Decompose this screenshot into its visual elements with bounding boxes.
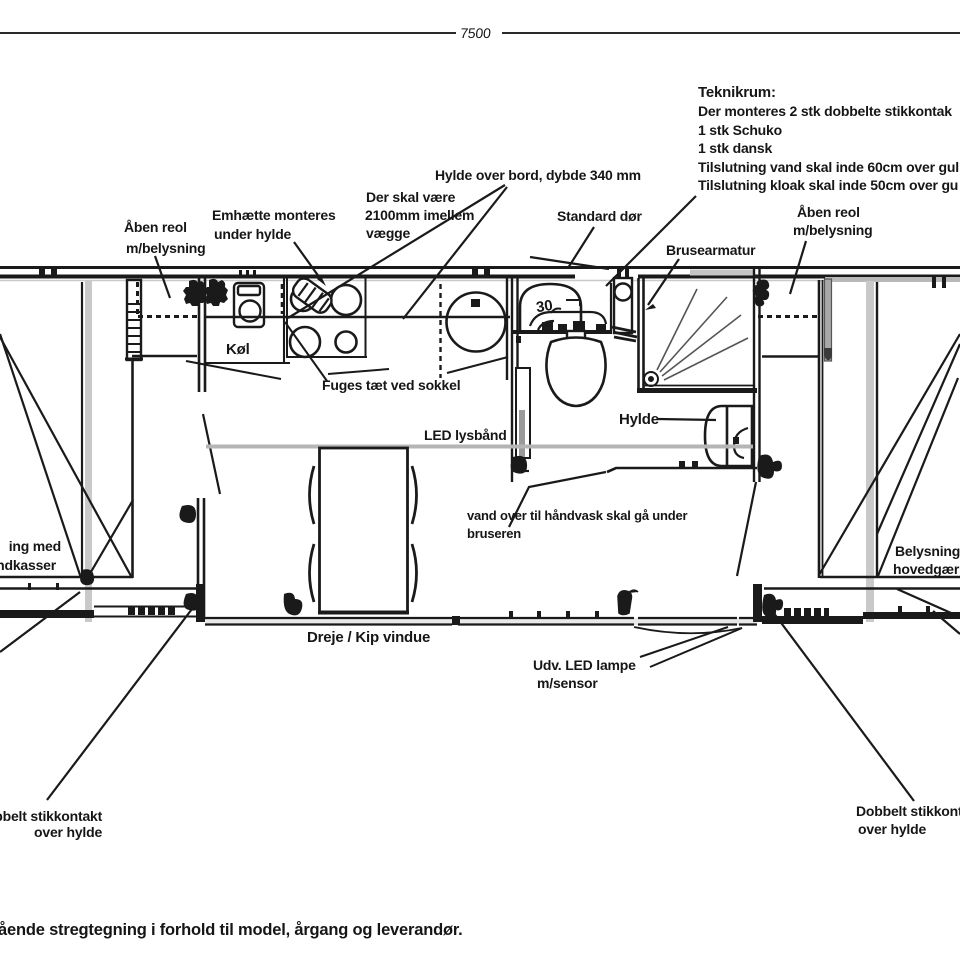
svg-text:m/sensor: m/sensor [537, 675, 598, 691]
svg-text:Køl: Køl [226, 341, 250, 358]
svg-text:ående stregtegning i forhold t: ående stregtegning i forhold til model, … [0, 921, 463, 939]
svg-text:m/belysning: m/belysning [126, 240, 205, 256]
svg-text:Tilslutning vand skal inde 60c: Tilslutning vand skal inde 60cm over gul [698, 159, 959, 175]
svg-text:Belysning: Belysning [895, 543, 960, 559]
svg-text:ndkasser: ndkasser [0, 557, 57, 573]
svg-text:Der monteres 2 stk dobbelte st: Der monteres 2 stk dobbelte stikkontak [698, 103, 952, 119]
svg-text:vægge: vægge [366, 225, 411, 241]
svg-text:ing med: ing med [9, 538, 61, 554]
svg-text:Hylde: Hylde [619, 411, 659, 428]
svg-text:Emhætte monteres: Emhætte monteres [212, 207, 336, 223]
svg-text:1 stk dansk: 1 stk dansk [698, 140, 772, 156]
svg-text:Åben reol: Åben reol [797, 204, 860, 220]
svg-text:hovedgær: hovedgær [893, 561, 960, 577]
svg-text:Dobbelt stikkontakt: Dobbelt stikkontakt [856, 803, 960, 819]
svg-text:2100mm imellem: 2100mm imellem [365, 207, 474, 223]
svg-text:bruseren: bruseren [467, 526, 521, 541]
svg-text:Der skal være: Der skal være [366, 189, 456, 205]
svg-text:Hylde over bord, dybde 340 mm: Hylde over bord, dybde 340 mm [435, 167, 641, 183]
svg-text:Dobbelt stikkontakt: Dobbelt stikkontakt [0, 808, 103, 824]
svg-text:LED lysbånd: LED lysbånd [424, 427, 507, 443]
svg-text:vand over til håndvask skal gå: vand over til håndvask skal gå under [467, 508, 688, 523]
svg-text:Tilslutning kloak skal inde 50: Tilslutning kloak skal inde 50cm over gu [698, 177, 958, 193]
svg-text:Dreje / Kip vindue: Dreje / Kip vindue [307, 629, 430, 646]
svg-text:Teknikrum:: Teknikrum: [698, 84, 776, 101]
svg-text:over hylde: over hylde [34, 824, 102, 840]
svg-text:over hylde: over hylde [858, 821, 926, 837]
svg-text:m/belysning: m/belysning [793, 222, 872, 238]
svg-text:Fuges tæt ved sokkel: Fuges tæt ved sokkel [322, 377, 460, 393]
svg-text:Standard dør: Standard dør [557, 208, 642, 224]
svg-text:1 stk Schuko: 1 stk Schuko [698, 122, 782, 138]
svg-text:under hylde: under hylde [214, 226, 292, 242]
svg-text:Udv. LED lampe: Udv. LED lampe [533, 657, 636, 673]
svg-text:Brusearmatur: Brusearmatur [666, 242, 756, 258]
svg-text:7500: 7500 [460, 25, 492, 41]
svg-text:Åben reol: Åben reol [124, 219, 187, 235]
